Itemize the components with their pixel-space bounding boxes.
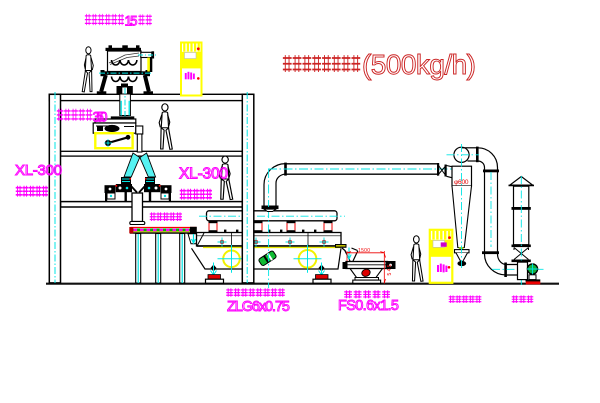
svg-text:350: 350 [93, 110, 108, 125]
svg-text:1.5: 1.5 [125, 14, 138, 29]
svg-text:(500kg/h): (500kg/h) [362, 49, 476, 80]
svg-text:XL-300: XL-300 [179, 166, 228, 183]
svg-text:XL-300: XL-300 [15, 162, 62, 179]
svg-text:1500: 1500 [358, 248, 370, 254]
svg-text:FS0.6x1.5: FS0.6x1.5 [338, 298, 399, 314]
svg-text:545: 545 [387, 264, 393, 275]
svg-text:ZLG6x0.75: ZLG6x0.75 [227, 299, 290, 315]
svg-text:φ600: φ600 [454, 179, 469, 186]
